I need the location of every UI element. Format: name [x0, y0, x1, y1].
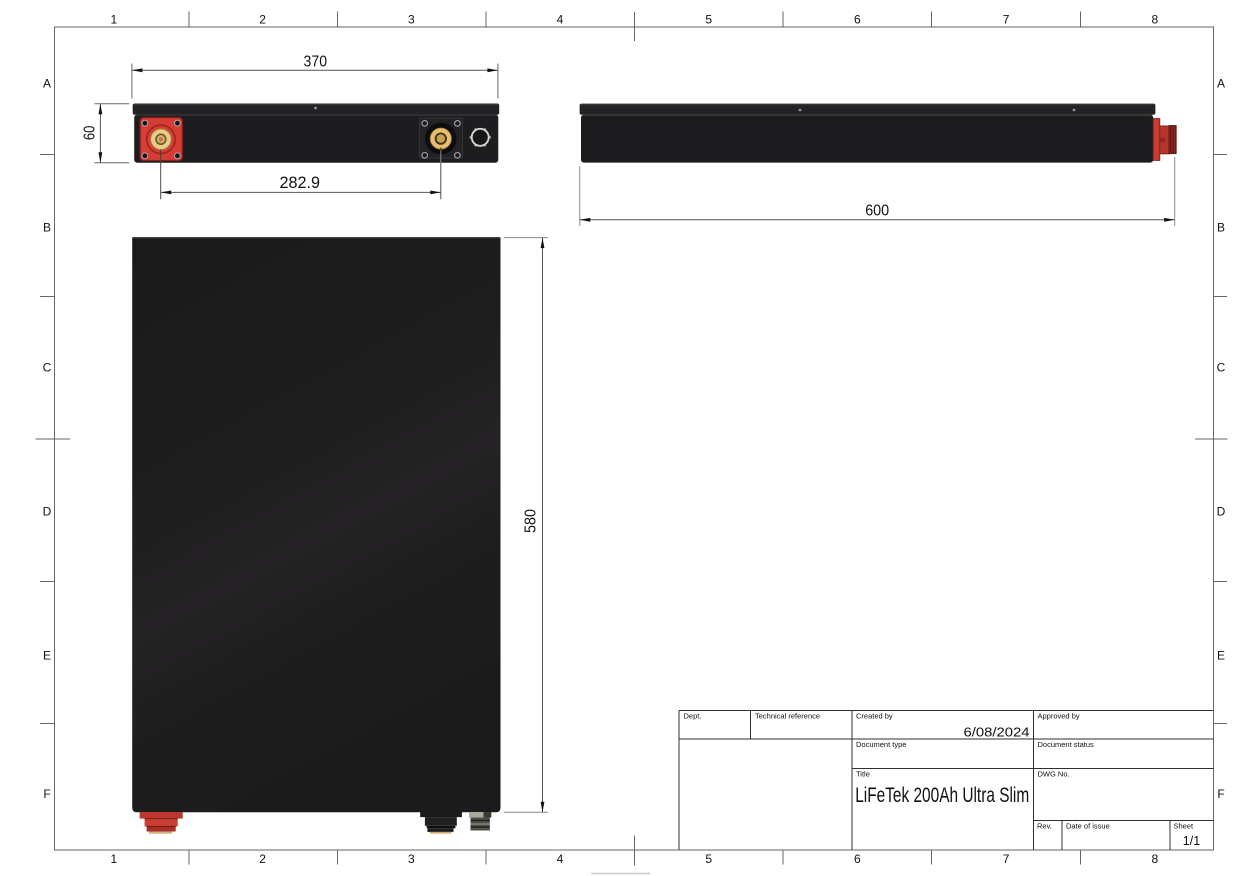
svg-text:C: C [43, 360, 52, 374]
svg-text:Sheet: Sheet [1174, 822, 1195, 831]
svg-text:580: 580 [523, 509, 540, 533]
svg-text:Document status: Document status [1038, 740, 1095, 749]
svg-text:Date of issue: Date of issue [1066, 822, 1110, 831]
svg-text:7: 7 [1003, 852, 1010, 866]
svg-text:E: E [43, 648, 51, 662]
svg-text:6: 6 [854, 13, 861, 27]
svg-text:Document type: Document type [856, 740, 906, 749]
svg-text:5: 5 [705, 852, 712, 866]
svg-text:E: E [1217, 648, 1225, 662]
svg-text:Created by: Created by [856, 712, 893, 721]
svg-text:6/08/2024: 6/08/2024 [964, 726, 1030, 740]
svg-text:A: A [1217, 77, 1225, 91]
svg-text:7: 7 [1003, 13, 1010, 27]
svg-text:8: 8 [1151, 13, 1158, 27]
svg-text:60: 60 [81, 125, 98, 140]
svg-text:6: 6 [854, 852, 861, 866]
svg-text:600: 600 [865, 203, 889, 220]
svg-text:F: F [1217, 787, 1224, 801]
svg-text:Approved by: Approved by [1038, 712, 1080, 721]
svg-text:282.9: 282.9 [280, 173, 321, 192]
svg-text:5: 5 [705, 13, 712, 27]
svg-text:DWG No.: DWG No. [1038, 770, 1070, 779]
svg-text:Rev.: Rev. [1037, 822, 1052, 831]
svg-text:3: 3 [408, 852, 415, 866]
svg-text:B: B [43, 220, 51, 234]
svg-text:Dept.: Dept. [684, 712, 702, 721]
svg-text:370: 370 [304, 53, 328, 70]
svg-text:Title: Title [856, 770, 870, 779]
svg-text:A: A [43, 77, 51, 91]
svg-text:LiFeTek 200Ah Ultra Slim: LiFeTek 200Ah Ultra Slim [855, 784, 1029, 807]
svg-text:1/1: 1/1 [1183, 834, 1200, 848]
svg-text:B: B [1217, 220, 1225, 234]
svg-text:3: 3 [408, 13, 415, 27]
svg-text:2: 2 [259, 13, 266, 27]
svg-text:1: 1 [111, 852, 118, 866]
svg-text:D: D [1217, 504, 1226, 518]
svg-text:2: 2 [259, 852, 266, 866]
svg-text:8: 8 [1151, 852, 1158, 866]
svg-text:F: F [43, 787, 50, 801]
svg-text:1: 1 [111, 13, 118, 27]
svg-text:C: C [1217, 360, 1226, 374]
svg-text:D: D [43, 504, 52, 518]
svg-text:Technical reference: Technical reference [755, 712, 820, 721]
svg-text:4: 4 [557, 852, 564, 866]
svg-text:4: 4 [557, 13, 564, 27]
